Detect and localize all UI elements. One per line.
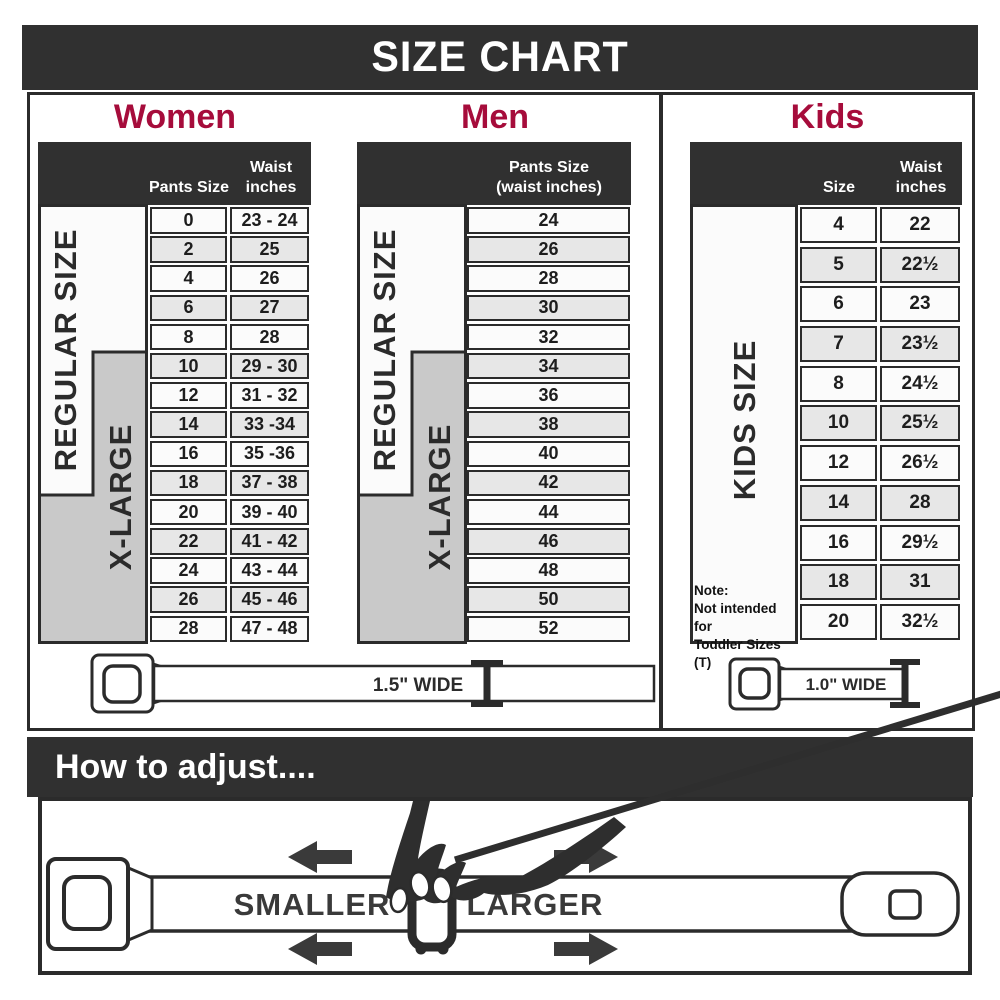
women-pants-size-cell: 22 [150,528,227,555]
men-pants-size-cell: 24 [467,207,630,234]
men-pants-size-cell: 50 [467,586,630,613]
men-table-row: 38 [467,411,630,438]
women-pants-size-cell: 0 [150,207,227,234]
women-table-row: 22 41 - 42 [150,528,309,555]
women-waist-cell: 47 - 48 [230,616,309,643]
how-to-adjust-title: How to adjust.... [55,748,316,787]
kids-table-row: 6 23 [800,286,960,322]
kids-size-cell: 16 [800,525,877,561]
women-table-row: 28 47 - 48 [150,616,309,643]
men-pants-size-cell: 34 [467,353,630,380]
adult-belt-illustration: 1.5" WIDE [88,650,663,718]
men-xlarge-label: X-LARGE [422,424,458,571]
kids-size-cell: 6 [800,286,877,322]
men-table-row: 26 [467,236,630,263]
women-table-row: 10 29 - 30 [150,353,309,380]
women-pants-size-cell: 6 [150,295,227,322]
kids-waist-cell: 23½ [880,326,960,362]
men-col-header: Pants Size (waist inches) [467,142,631,205]
kids-waist-cell: 22 [880,207,960,243]
women-table-row: 18 37 - 38 [150,470,309,497]
men-pants-size-cell: 32 [467,324,630,351]
kids-table-row: 7 23½ [800,326,960,362]
men-table-row: 42 [467,470,630,497]
women-waist-cell: 41 - 42 [230,528,309,555]
kids-waist-cell: 31 [880,564,960,600]
kids-title: Kids [700,100,955,134]
women-waist-cell: 29 - 30 [230,353,309,380]
women-pants-size-cell: 24 [150,557,227,584]
women-pants-size-cell: 4 [150,265,227,292]
men-pants-size-cell: 38 [467,411,630,438]
women-waist-cell: 33 -34 [230,411,309,438]
women-table-row: 0 23 - 24 [150,207,309,234]
men-table-row: 44 [467,499,630,526]
kids-waist-cell: 28 [880,485,960,521]
men-table-row: 48 [467,557,630,584]
men-pants-size-cell: 40 [467,441,630,468]
women-table-row: 24 43 - 44 [150,557,309,584]
women-table-row: 2 25 [150,236,309,263]
women-pants-size-cell: 10 [150,353,227,380]
page-title: SIZE CHART [371,33,628,82]
kids-col1-header: Size [800,142,878,205]
kids-table-row: 10 25½ [800,405,960,441]
kids-table-row: 8 24½ [800,366,960,402]
men-pants-size-cell: 52 [467,616,630,643]
men-rows: 24 26 28 30 32 34 36 [467,207,630,645]
women-waist-cell: 28 [230,324,309,351]
men-pants-size-cell: 36 [467,382,630,409]
men-kids-divider [659,92,663,731]
kids-size-cell: 8 [800,366,877,402]
kids-table-row: 20 32½ [800,604,960,640]
women-pants-size-cell: 26 [150,586,227,613]
women-waist-cell: 45 - 46 [230,586,309,613]
kids-table-row: 4 22 [800,207,960,243]
kids-size-cell: 10 [800,405,877,441]
women-waist-cell: 43 - 44 [230,557,309,584]
men-pants-size-cell: 44 [467,499,630,526]
women-regular-size-label: REGULAR SIZE [48,229,84,472]
women-pants-size-cell: 2 [150,236,227,263]
women-table-row: 16 35 -36 [150,441,309,468]
kids-size-cell: 20 [800,604,877,640]
kids-waist-cell: 26½ [880,445,960,481]
kids-waist-cell: 25½ [880,405,960,441]
kids-table-row: 5 22½ [800,247,960,283]
kids-note: Note: Not intended for Toddler Sizes (T) [694,582,796,672]
women-table-row: 8 28 [150,324,309,351]
size-chart-banner: SIZE CHART [22,25,978,90]
women-table-row: 14 33 -34 [150,411,309,438]
kids-table-row: 18 31 [800,564,960,600]
women-waist-cell: 37 - 38 [230,470,309,497]
men-table-row: 36 [467,382,630,409]
kids-size-cell: 5 [800,247,877,283]
adjust-illustration-box: SMALLER LARGER [38,797,972,975]
women-rows: 0 23 - 24 2 25 4 26 6 27 8 28 [150,207,309,645]
kids-belt-width-label: 1.0" WIDE [806,675,887,694]
men-pants-size-cell: 48 [467,557,630,584]
men-table-row: 50 [467,586,630,613]
kids-table-row: 12 26½ [800,445,960,481]
women-pants-size-cell: 28 [150,616,227,643]
women-pants-size-cell: 12 [150,382,227,409]
men-regular-size-label: REGULAR SIZE [367,229,403,472]
women-xlarge-label: X-LARGE [103,424,139,571]
smaller-label: SMALLER [234,887,391,922]
men-pants-size-cell: 28 [467,265,630,292]
women-table-row: 20 39 - 40 [150,499,309,526]
women-title: Women [50,100,300,134]
women-col1-header: Pants Size [148,142,230,205]
men-pants-size-cell: 26 [467,236,630,263]
men-pants-size-cell: 42 [467,470,630,497]
size-chart-page: SIZE CHART Women Men Kids Pants Size Wai… [0,0,1000,1000]
kids-size-cell: 14 [800,485,877,521]
women-waist-cell: 25 [230,236,309,263]
kids-size-cell: 4 [800,207,877,243]
women-table-row: 6 27 [150,295,309,322]
kids-size-cell: 12 [800,445,877,481]
men-table-row: 46 [467,528,630,555]
men-table-row: 34 [467,353,630,380]
adjust-illustration: SMALLER LARGER [42,801,968,971]
belt-tip-hole [890,891,920,918]
kids-size-cell: 7 [800,326,877,362]
women-pants-size-cell: 16 [150,441,227,468]
women-waist-cell: 31 - 32 [230,382,309,409]
kids-size-label: KIDS SIZE [727,340,763,501]
women-table-row: 26 45 - 46 [150,586,309,613]
women-table-row: 4 26 [150,265,309,292]
how-to-adjust-band: How to adjust.... [27,737,973,797]
women-table-row: 12 31 - 32 [150,382,309,409]
women-waist-cell: 23 - 24 [230,207,309,234]
men-table-row: 28 [467,265,630,292]
kids-col2-header: Waist inches [879,142,963,205]
kids-waist-cell: 23 [880,286,960,322]
women-pants-size-cell: 20 [150,499,227,526]
kids-table-row: 14 28 [800,485,960,521]
men-table-row: 52 [467,616,630,643]
men-table-row: 32 [467,324,630,351]
women-waist-cell: 26 [230,265,309,292]
kids-waist-cell: 29½ [880,525,960,561]
kids-waist-cell: 32½ [880,604,960,640]
women-col2-header: Waist inches [231,142,311,205]
women-pants-size-cell: 8 [150,324,227,351]
men-pants-size-cell: 30 [467,295,630,322]
kids-waist-cell: 22½ [880,247,960,283]
kids-rows: 4 22 5 22½ 6 23 7 23½ 8 24½ [800,207,960,644]
women-pants-size-cell: 14 [150,411,227,438]
women-pants-size-cell: 18 [150,470,227,497]
men-table-row: 30 [467,295,630,322]
men-table-row: 40 [467,441,630,468]
women-waist-cell: 39 - 40 [230,499,309,526]
kids-table-row: 16 29½ [800,525,960,561]
men-pants-size-cell: 46 [467,528,630,555]
women-waist-cell: 35 -36 [230,441,309,468]
adult-belt-width-label: 1.5" WIDE [373,675,463,696]
kids-waist-cell: 24½ [880,366,960,402]
men-table-row: 24 [467,207,630,234]
kids-size-cell: 18 [800,564,877,600]
women-waist-cell: 27 [230,295,309,322]
men-title: Men [360,100,630,134]
